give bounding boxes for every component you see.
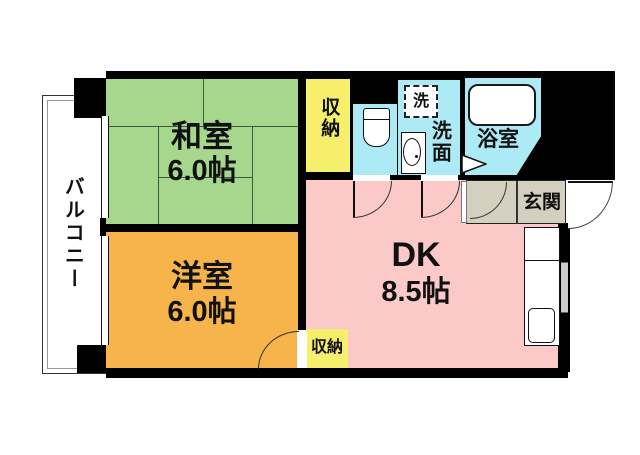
floor-plan: バルコニー DK 8.5帖 和室 6.0帖 洋室 6.0帖 収納 bbox=[0, 0, 640, 455]
counter-divider-line bbox=[525, 260, 559, 261]
closet-bottom: 収納 bbox=[306, 329, 348, 368]
dk-window bbox=[561, 262, 568, 313]
genkan-step bbox=[461, 181, 467, 223]
washroom: 洗 洗面 bbox=[398, 80, 460, 175]
toilet-icon bbox=[363, 108, 390, 147]
bathroom-label: 浴室 bbox=[467, 128, 529, 152]
dk-area-label: 8.5帖 bbox=[336, 276, 496, 308]
washer-label: 洗 bbox=[413, 93, 429, 110]
bathroom-door-icon bbox=[461, 154, 487, 174]
wall-bottom bbox=[106, 368, 568, 378]
toilet-room bbox=[353, 104, 397, 175]
youshitsu-label: 洋室 bbox=[106, 260, 298, 295]
washitsu-label: 和室 bbox=[106, 120, 298, 155]
washroom-label: 洗面 bbox=[428, 120, 450, 164]
room-washitsu: 和室 6.0帖 bbox=[106, 79, 298, 224]
washing-machine-icon: 洗 bbox=[404, 85, 438, 118]
sink-icon bbox=[401, 132, 426, 174]
kitchen-sink-icon bbox=[528, 308, 555, 343]
youshitsu-window bbox=[101, 236, 109, 345]
wall-corner-bottom-left bbox=[77, 345, 107, 373]
washitsu-area-label: 6.0帖 bbox=[106, 155, 298, 187]
dk-label: DK bbox=[356, 236, 476, 274]
entry-door-arc bbox=[568, 181, 613, 229]
closet-bottom-label: 収納 bbox=[306, 339, 348, 357]
washitsu-window bbox=[101, 116, 109, 218]
bathtub-icon bbox=[468, 84, 536, 126]
kitchen-counter bbox=[524, 227, 560, 346]
wall-corner-top-left bbox=[74, 78, 110, 118]
closet-top: 収納 bbox=[306, 79, 350, 172]
closet-top-label: 収納 bbox=[318, 97, 339, 139]
toilet-tank-line bbox=[364, 119, 389, 120]
sink-faucet-dot bbox=[415, 155, 418, 158]
balcony: バルコニー bbox=[42, 95, 106, 374]
genkan-divider-line bbox=[516, 181, 518, 224]
genkan-label: 玄関 bbox=[519, 192, 565, 213]
wall-mid-horizontal bbox=[106, 224, 306, 232]
balcony-label: バルコニー bbox=[61, 176, 83, 291]
youshitsu-area-label: 6.0帖 bbox=[106, 296, 298, 328]
sink-bowl-icon bbox=[403, 138, 421, 166]
